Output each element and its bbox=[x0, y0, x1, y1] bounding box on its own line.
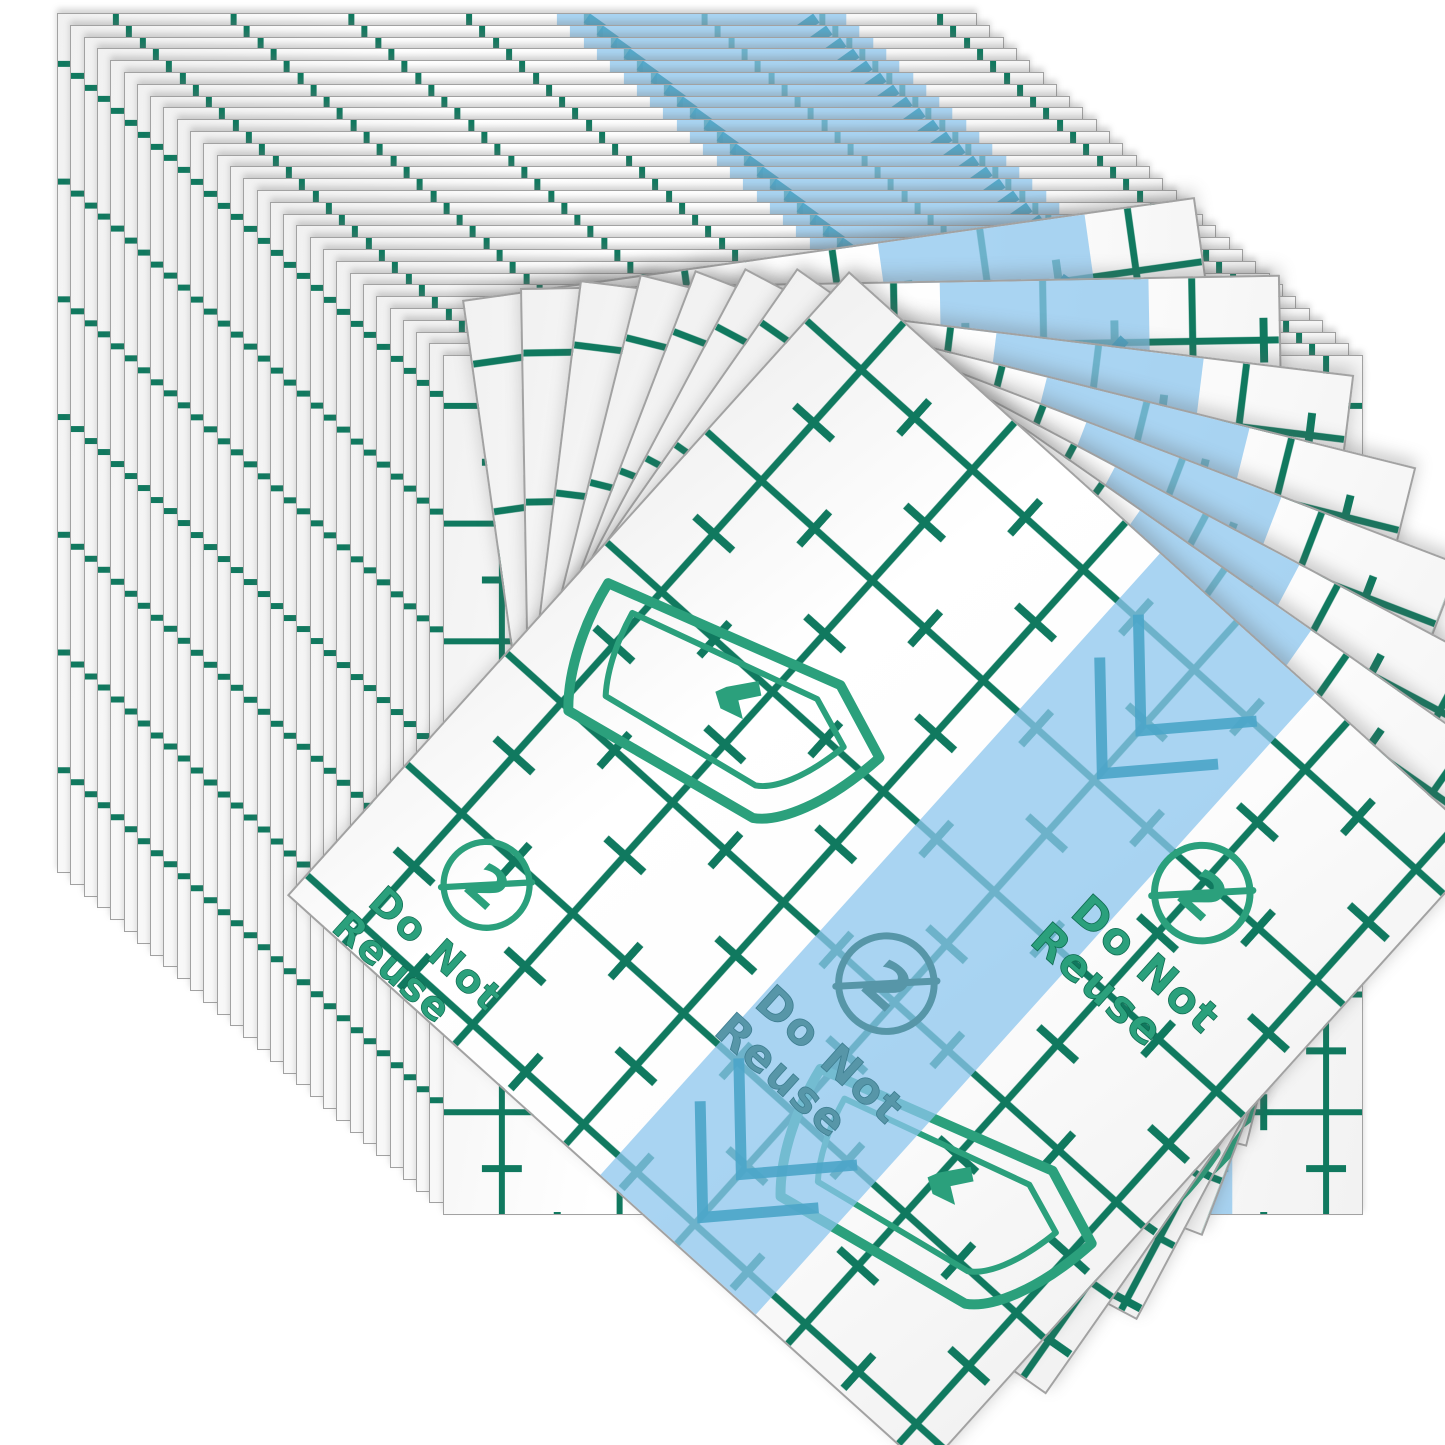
product-photo: 2Do NotReuse2Do NotReuse bbox=[0, 0, 1445, 1445]
